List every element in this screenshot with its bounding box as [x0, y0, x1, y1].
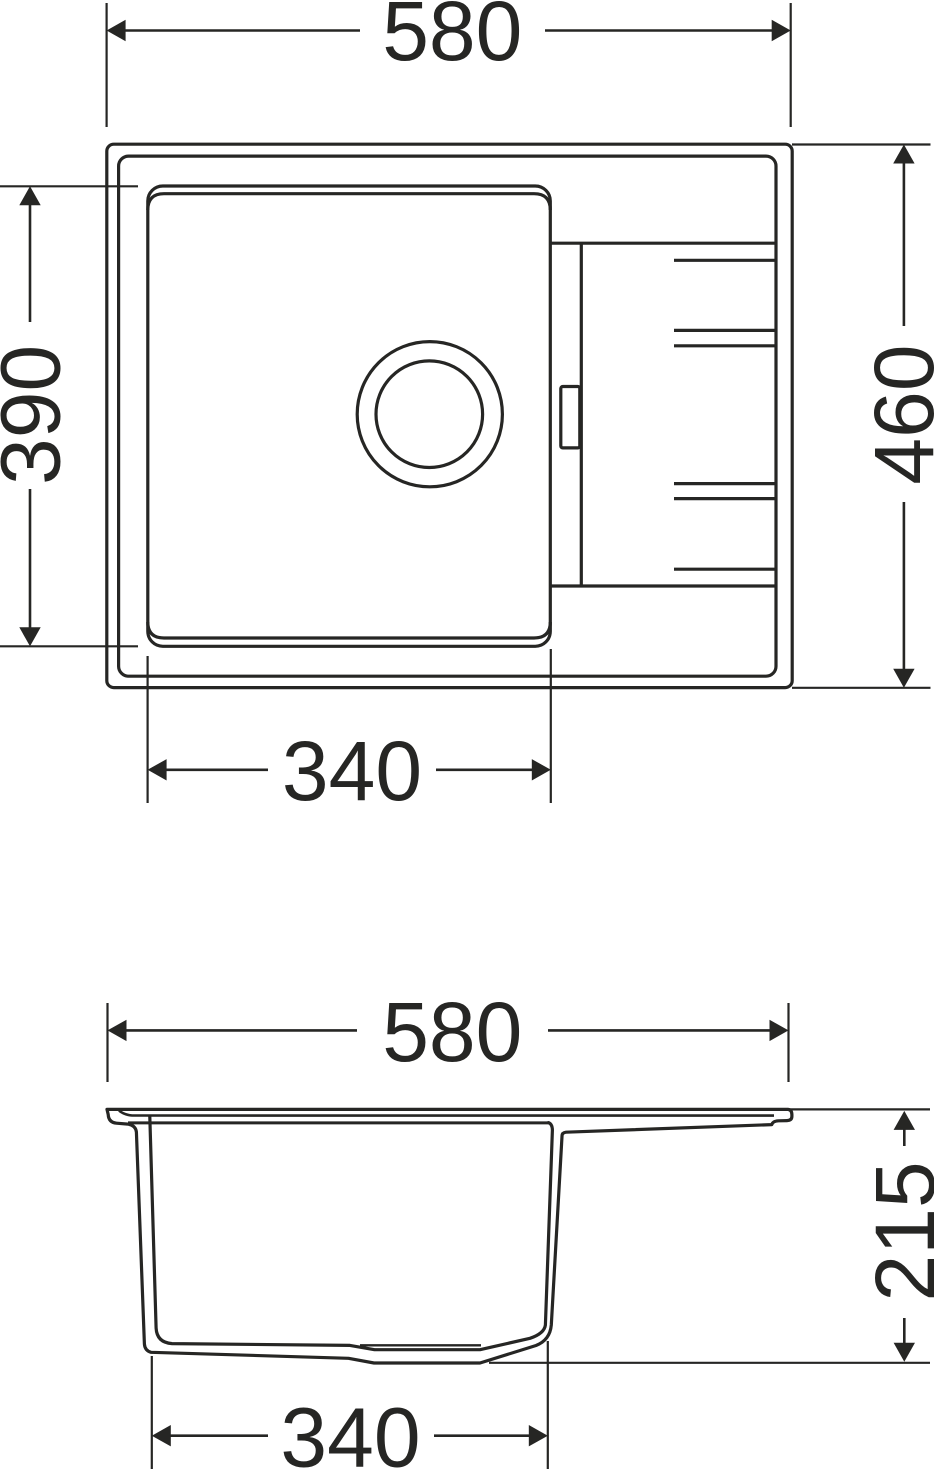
svg-text:460: 460 [857, 344, 934, 484]
svg-text:580: 580 [382, 0, 522, 78]
svg-text:580: 580 [382, 985, 522, 1079]
svg-text:340: 340 [282, 724, 422, 818]
svg-text:340: 340 [280, 1390, 420, 1469]
svg-text:215: 215 [858, 1161, 934, 1301]
svg-text:390: 390 [0, 345, 78, 485]
